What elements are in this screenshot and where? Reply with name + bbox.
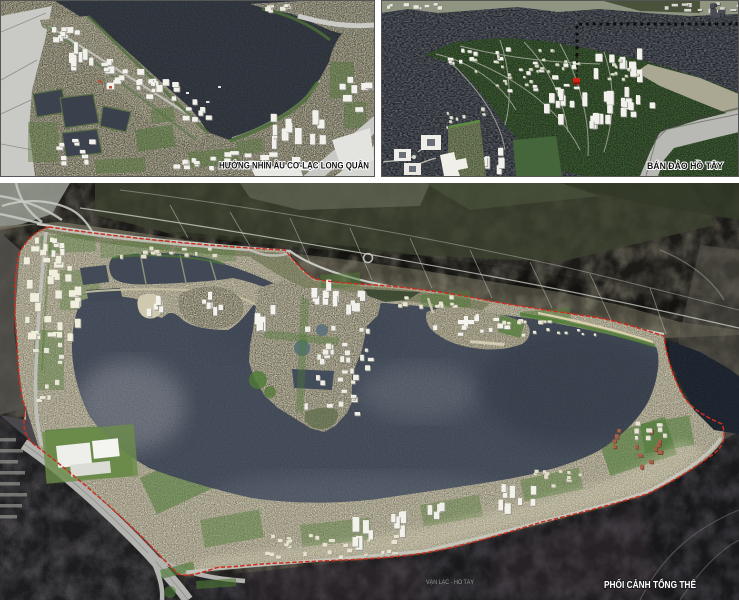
svg-text:HƯỚNG NHÌN ÂU CƠ-LẠC LONG QUÂN: HƯỚNG NHÌN ÂU CƠ-LẠC LONG QUÂN bbox=[219, 160, 369, 172]
svg-text:PHỐI CẢNH TỔNG THỂ: PHỐI CẢNH TỔNG THỂ bbox=[604, 577, 696, 591]
svg-text:BÁN ĐẢO HỒ TÂY: BÁN ĐẢO HỒ TÂY bbox=[647, 160, 724, 172]
svg-text:VẠN LẠC - HỒ TÂY: VẠN LẠC - HỒ TÂY bbox=[426, 579, 474, 586]
